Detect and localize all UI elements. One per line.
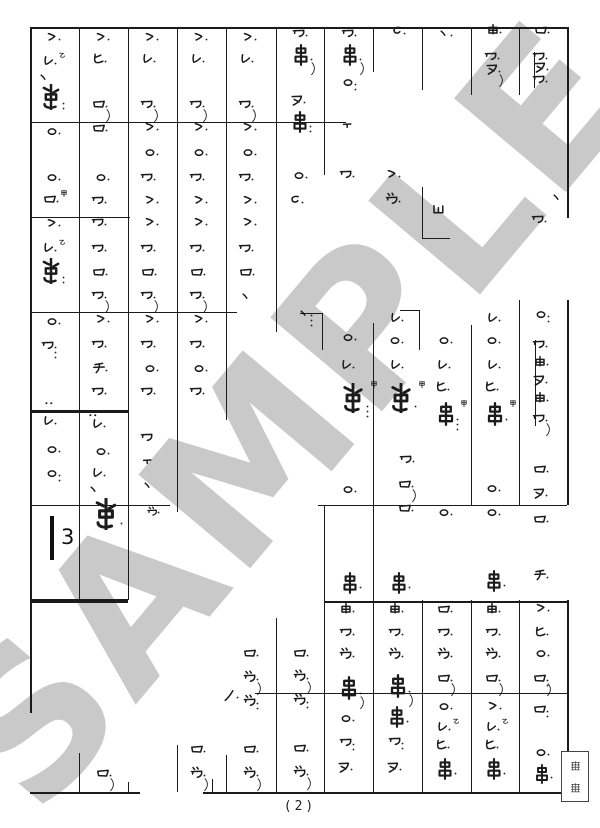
grid-line-vertical — [373, 27, 374, 72]
beat-dot-icon — [545, 469, 550, 474]
beat-dot-icon — [57, 131, 62, 136]
notation-glyph-kushi — [483, 758, 505, 780]
beat-dot-icon — [250, 59, 255, 64]
beat-dot-icon — [446, 387, 451, 392]
grid-line-vertical — [422, 600, 423, 792]
beat-dot-icon — [103, 344, 108, 349]
rest-bar-icon — [50, 516, 54, 560]
register-mark-otsu — [57, 238, 67, 248]
beat-dot-icon — [106, 177, 111, 182]
notation-glyph-kushi — [483, 402, 507, 426]
beat-dot-icon — [546, 30, 551, 35]
register-mark-kan — [459, 399, 469, 409]
grid-line-vertical — [177, 745, 178, 792]
notation-glyph-ten — [238, 289, 254, 305]
beat-dot-icon — [300, 200, 305, 205]
beat-dot-icon — [545, 519, 550, 524]
beat-dot-icon — [55, 199, 60, 204]
beat-dot-icon — [353, 87, 358, 92]
beat-dot-icon — [351, 654, 356, 659]
beat-dot-icon — [201, 177, 206, 182]
beat-dot-icon — [544, 493, 549, 498]
beat-dot-icon — [253, 222, 258, 227]
beat-dot-icon — [57, 177, 62, 182]
beat-dot-icon — [152, 391, 157, 396]
slur-icon — [359, 61, 367, 78]
beat-dot-icon — [411, 459, 416, 464]
slur-icon — [109, 777, 117, 794]
beat-dot-icon — [365, 414, 370, 419]
beat-dot-icon — [251, 272, 256, 277]
slur-icon — [546, 682, 554, 699]
beat-dot-icon — [497, 340, 502, 345]
beat-dot-icon — [202, 272, 207, 277]
beat-dot-icon — [104, 368, 109, 373]
beat-dot-icon — [106, 319, 111, 324]
notation-glyph-tt — [140, 456, 156, 472]
beat-dot-icon — [351, 718, 356, 723]
grid-line-vertical — [471, 325, 472, 505]
slur-icon — [498, 73, 506, 90]
beat-dot-icon — [400, 365, 405, 370]
grid-line-vertical — [471, 27, 472, 95]
page-number: (2) — [0, 799, 600, 814]
beat-dot-icon — [57, 321, 62, 326]
beat-dot-icon — [497, 632, 502, 637]
grid-line-vertical — [177, 27, 178, 512]
notation-glyph-kushi — [434, 758, 456, 780]
grid-line-vertical — [324, 505, 325, 792]
beat-dot-icon — [103, 59, 108, 64]
register-mark-otsu — [451, 717, 461, 727]
beat-dot-icon — [545, 575, 550, 580]
beat-dot-icon — [351, 632, 356, 637]
slur-icon — [359, 695, 367, 712]
slur-icon — [408, 693, 416, 710]
beat-dot-icon — [496, 727, 501, 732]
beat-dot-icon — [349, 767, 354, 772]
beat-dot-icon — [353, 489, 358, 494]
beat-dot-icon — [545, 714, 550, 719]
grid-line-vertical — [471, 600, 472, 792]
beat-dot-icon — [351, 609, 356, 614]
grid-line-vertical — [519, 27, 520, 95]
notation-glyph-dd — [42, 396, 58, 412]
beat-dot-icon — [253, 37, 258, 42]
beat-dot-icon — [102, 473, 107, 478]
grid-line-horizontal — [422, 238, 450, 239]
notation-glyph-tallc — [90, 498, 122, 530]
beat-dot-icon — [302, 100, 307, 105]
beat-dot-icon — [255, 749, 260, 754]
beat-dot-icon — [545, 398, 550, 403]
beat-dot-icon — [53, 61, 58, 66]
beat-dot-icon — [57, 37, 62, 42]
beat-dot-icon — [104, 272, 109, 277]
notation-glyph-kushi — [483, 570, 505, 592]
beat-dot-icon — [119, 521, 124, 526]
grid-line-vertical — [322, 313, 323, 350]
beat-dot-icon — [402, 31, 407, 36]
beat-dot-icon — [447, 365, 452, 370]
notation-glyph-kushi — [290, 44, 312, 66]
beat-dot-icon — [502, 583, 507, 588]
beat-dot-icon — [253, 152, 258, 157]
notation-glyph-ub — [430, 202, 446, 218]
beat-dot-icon — [545, 362, 550, 367]
beat-dot-icon — [544, 79, 549, 84]
grid-line-vertical — [30, 27, 32, 713]
grid-line-vertical — [567, 300, 569, 505]
beat-dot-icon — [497, 654, 502, 659]
grid-line-vertical — [79, 27, 80, 600]
beat-dot-icon — [53, 355, 58, 360]
beat-dot-icon — [400, 609, 405, 614]
beat-dot-icon — [235, 695, 240, 700]
beat-dot-icon — [498, 30, 503, 35]
beat-dot-icon — [413, 404, 418, 409]
grid-line-vertical — [373, 323, 374, 792]
beat-dot-icon — [102, 424, 107, 429]
notation-glyph-ten — [140, 478, 156, 494]
beat-dot-icon — [201, 344, 206, 349]
beat-dot-icon — [305, 653, 310, 658]
beat-dot-icon — [400, 746, 405, 751]
beat-dot-icon — [397, 199, 402, 204]
grid-line-vertical — [519, 300, 520, 505]
grid-line-vertical — [422, 187, 423, 238]
beat-dot-icon — [155, 37, 160, 42]
beat-dot-icon — [204, 222, 209, 227]
beat-dot-icon — [497, 512, 502, 517]
beat-dot-icon — [544, 344, 549, 349]
beat-dot-icon — [204, 319, 209, 324]
beat-dot-icon — [407, 585, 412, 590]
beat-dot-icon — [545, 632, 550, 637]
notation-glyph-kushi — [386, 706, 408, 728]
beat-dot-icon — [400, 340, 405, 345]
beat-dot-icon — [53, 248, 58, 253]
beat-dot-icon — [405, 719, 410, 724]
beat-dot-icon — [400, 318, 405, 323]
slur-icon — [306, 776, 314, 793]
beat-dot-icon — [308, 129, 313, 134]
notation-glyph-ten — [549, 190, 565, 206]
grid-line-vertical — [212, 779, 213, 792]
beat-dot-icon — [61, 106, 66, 111]
beat-dot-icon — [304, 175, 309, 180]
notation-glyph-kushi — [337, 676, 361, 700]
notation-glyph-kushi — [339, 44, 361, 66]
beat-dot-icon — [201, 248, 206, 253]
beat-dot-icon — [353, 337, 358, 342]
beat-dot-icon — [449, 512, 454, 517]
notation-glyph-ten — [86, 482, 102, 498]
grid-line-vertical — [276, 27, 277, 332]
notation-glyph-wa — [139, 430, 155, 446]
beat-dot-icon — [204, 37, 209, 42]
beat-dot-icon — [544, 380, 549, 385]
beat-dot-icon — [453, 771, 458, 776]
register-mark-otsu — [500, 717, 510, 727]
beat-dot-icon — [304, 33, 309, 38]
notation-glyph-tallc — [338, 383, 368, 413]
grid-line-vertical — [276, 618, 277, 792]
beat-dot-icon — [549, 775, 554, 780]
beat-dot-icon — [201, 391, 206, 396]
notation-glyph-kushi — [386, 674, 410, 698]
grid-line-vertical — [128, 782, 129, 792]
beat-dot-icon — [57, 478, 62, 483]
beat-dot-icon — [204, 200, 209, 205]
beat-dot-icon — [546, 752, 551, 757]
beat-dot-icon — [106, 37, 111, 42]
beat-dot-icon — [455, 427, 460, 432]
grid-line-vertical — [226, 27, 227, 420]
beat-dot-icon — [497, 488, 502, 493]
beat-dot-icon — [152, 344, 157, 349]
beat-dot-icon — [351, 747, 356, 752]
beat-dot-icon — [400, 654, 405, 659]
beat-dot-icon — [309, 323, 314, 328]
beat-dot-icon — [103, 222, 108, 227]
beat-dot-icon — [201, 59, 206, 64]
beat-dot-icon — [152, 248, 157, 253]
beat-dot-icon — [155, 200, 160, 205]
beat-dot-icon — [495, 745, 500, 750]
beat-dot-icon — [57, 449, 62, 454]
score-page: SAMPLE — [0, 0, 600, 828]
beat-dot-icon — [61, 280, 66, 285]
beat-dot-icon — [57, 223, 62, 228]
beat-dot-icon — [498, 706, 503, 711]
beat-dot-icon — [104, 128, 109, 133]
kanji-label-icon — [570, 782, 581, 793]
beat-dot-icon — [398, 767, 403, 772]
grid-line-vertical — [324, 27, 325, 175]
beat-dot-icon — [152, 177, 157, 182]
beat-dot-icon — [250, 248, 255, 253]
grid-line-vertical — [519, 600, 520, 792]
beat-dot-icon — [202, 749, 207, 754]
beat-dot-icon — [103, 200, 108, 205]
beat-dot-icon — [496, 56, 501, 61]
beat-dot-icon — [449, 340, 454, 345]
slur-icon — [498, 682, 506, 699]
notation-glyph-tt — [340, 120, 356, 136]
beat-dot-icon — [204, 127, 209, 132]
beat-dot-icon — [255, 653, 260, 658]
beat-dot-icon — [497, 609, 502, 614]
beat-dot-icon — [305, 705, 310, 710]
grid-line-vertical — [422, 27, 423, 90]
grid-line-vertical — [79, 753, 80, 792]
beat-dot-icon — [255, 706, 260, 711]
notation-glyph-kushi — [339, 572, 361, 594]
beat-dot-icon — [449, 654, 454, 659]
beat-dot-icon — [204, 152, 209, 157]
grid-line-horizontal — [30, 792, 140, 794]
beat-dot-icon — [497, 365, 502, 370]
beat-dot-icon — [152, 59, 157, 64]
beat-dot-icon — [449, 706, 454, 711]
beat-dot-icon — [250, 177, 255, 182]
slur-icon — [450, 682, 458, 699]
kanji-label-icon — [570, 760, 581, 771]
beat-dot-icon — [400, 632, 405, 637]
beat-dot-icon — [155, 127, 160, 132]
beat-dot-icon — [449, 609, 454, 614]
slur-icon — [310, 61, 318, 78]
slur-icon — [203, 777, 211, 794]
notation-glyph-kushi — [388, 572, 410, 594]
notation-glyph-kushi — [532, 764, 552, 784]
beat-dot-icon — [53, 421, 58, 426]
notation-glyph-tallc — [386, 383, 416, 413]
beat-dot-icon — [156, 510, 161, 515]
beat-dot-icon — [351, 365, 356, 370]
beat-dot-icon — [502, 771, 507, 776]
register-mark-otsu — [57, 51, 67, 61]
beat-dot-icon — [153, 272, 158, 277]
beat-dot-icon — [103, 248, 108, 253]
beat-dot-icon — [449, 632, 454, 637]
beat-dot-icon — [253, 127, 258, 132]
beat-dot-icon — [504, 417, 509, 422]
beat-dot-icon — [410, 508, 415, 513]
beat-dot-icon — [103, 391, 108, 396]
beat-dot-icon — [543, 219, 548, 224]
beat-dot-icon — [353, 33, 358, 38]
rest-count: 3 — [61, 527, 74, 548]
beat-dot-icon — [495, 387, 500, 392]
beat-dot-icon — [397, 174, 402, 179]
beat-dot-icon — [446, 745, 451, 750]
beat-dot-icon — [155, 222, 160, 227]
slur-icon — [256, 777, 264, 794]
beat-dot-icon — [546, 319, 551, 324]
beat-dot-icon — [106, 451, 111, 456]
score-grid — [0, 0, 600, 828]
grid-line-vertical — [419, 310, 420, 350]
grid-line-vertical — [128, 27, 129, 600]
beat-dot-icon — [546, 608, 551, 613]
beat-dot-icon — [351, 174, 356, 179]
beat-dot-icon — [497, 318, 502, 323]
register-mark-kan — [369, 380, 379, 390]
edge-label-box — [561, 751, 589, 802]
grid-line-vertical — [567, 27, 569, 218]
beat-dot-icon — [155, 152, 160, 157]
slur-icon — [545, 422, 553, 439]
beat-dot-icon — [253, 200, 258, 205]
beat-dot-icon — [358, 585, 363, 590]
beat-dot-icon — [204, 368, 209, 373]
beat-dot-icon — [155, 368, 160, 373]
register-mark-kan — [417, 380, 427, 390]
register-mark-kan — [508, 399, 518, 409]
grid-line-vertical — [226, 755, 227, 792]
beat-dot-icon — [447, 727, 452, 732]
beat-dot-icon — [305, 748, 310, 753]
register-mark-kan — [59, 189, 69, 199]
beat-dot-icon — [155, 319, 160, 324]
beat-dot-icon — [449, 33, 454, 38]
beat-dot-icon — [546, 653, 551, 658]
